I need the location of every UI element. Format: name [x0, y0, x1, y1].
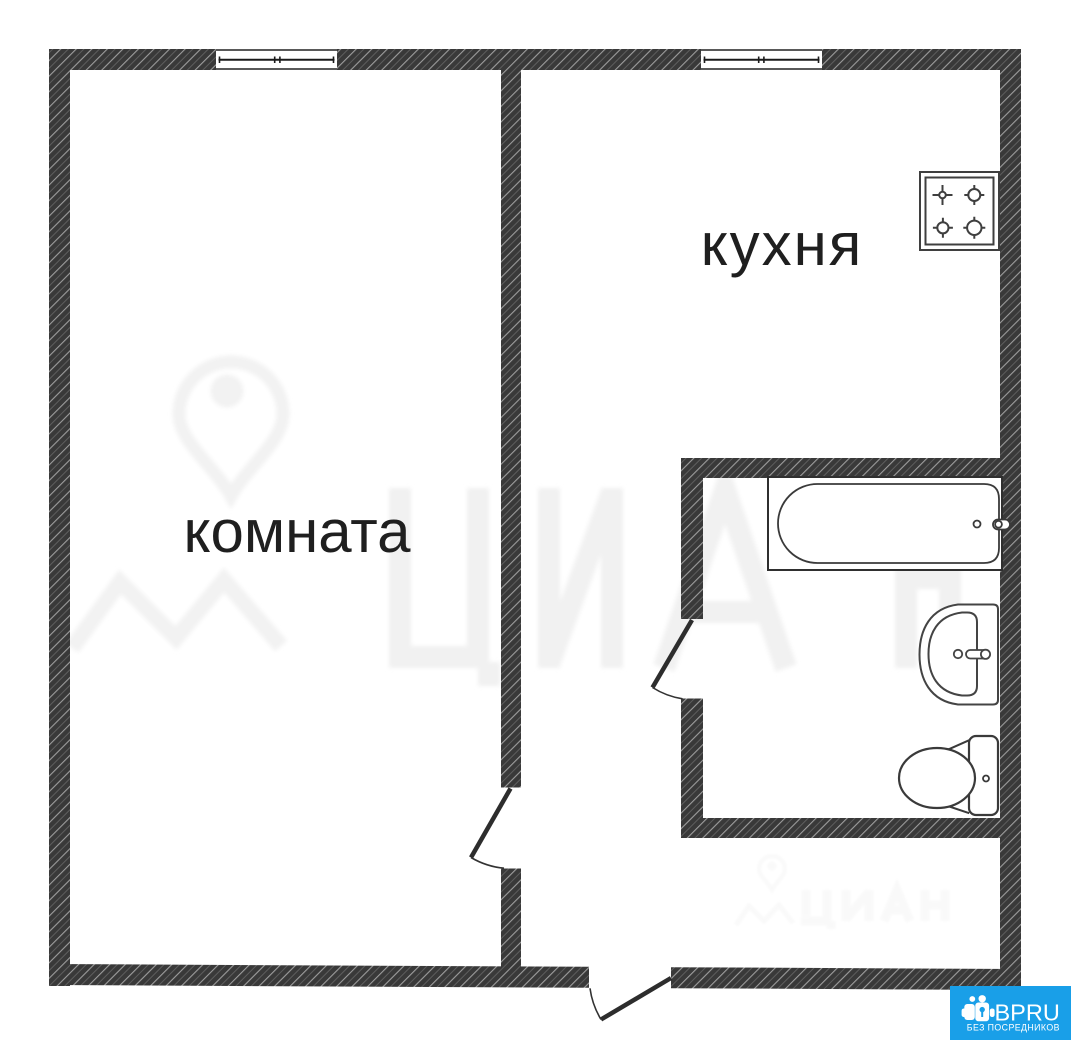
svg-text:комната: комната	[184, 498, 412, 565]
svg-text:БЕЗ ПОСРЕДНИКОВ: БЕЗ ПОСРЕДНИКОВ	[967, 1023, 1060, 1033]
svg-text:BPRU: BPRU	[995, 999, 1060, 1025]
svg-text:кухня: кухня	[701, 211, 864, 278]
